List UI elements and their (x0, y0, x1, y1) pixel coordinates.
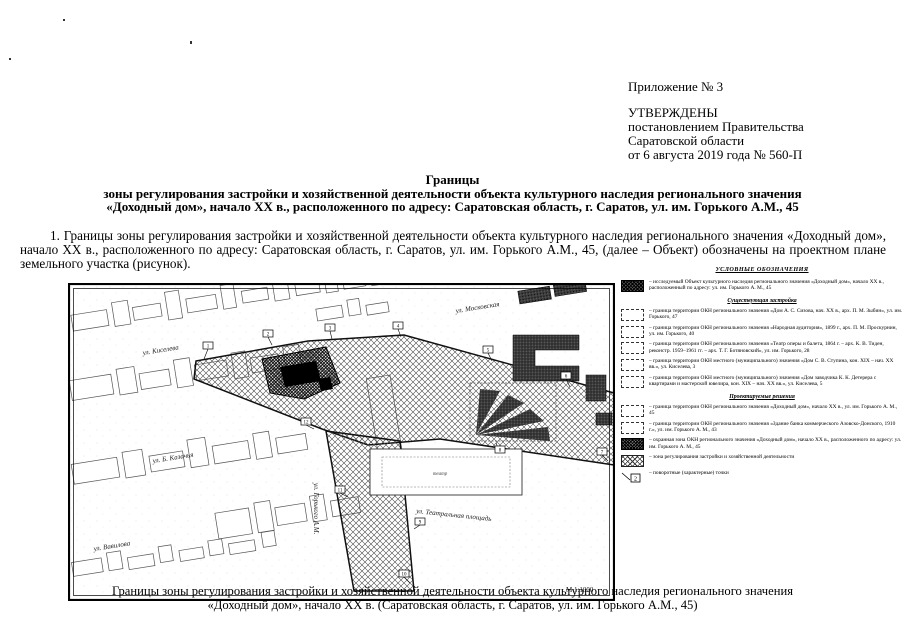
legend-item: – граница территории ОКН регионального з… (621, 341, 903, 354)
territory-boundary-swatch (621, 376, 644, 388)
territory-boundary-swatch (621, 405, 644, 417)
legend-item-text: – исследуемый Объект культурного наследи… (649, 279, 903, 292)
svg-text:12: 12 (304, 421, 310, 426)
legend-item-text: – граница территории ОКН регионального з… (649, 308, 903, 321)
page-title: Границы зоны регулирования застройки и х… (0, 173, 905, 214)
legend-item: – охранная зона ОКН регионального значен… (621, 437, 903, 450)
protection-zone-swatch (621, 438, 644, 450)
legend-item-text: – зона регулирования застройки и хозяйст… (649, 454, 903, 461)
svg-text:2: 2 (634, 477, 637, 483)
figure-caption: Границы зоны регулирования застройки и х… (0, 584, 905, 612)
legend-item-text: – граница территории ОКН местного (муниц… (649, 358, 903, 371)
approval-line: УТВЕРЖДЕНЫ (628, 106, 804, 120)
turning-point-swatch-svg: 2 (621, 471, 644, 483)
legend-item-text: – граница территории ОКН местного (муниц… (649, 375, 903, 388)
theater-building: театр (370, 449, 522, 495)
legend-item-text: – граница территории ОКН регионального з… (649, 404, 903, 417)
site-plan-figure: театр ул. Киселева ул. Московская ул. Б.… (68, 283, 615, 601)
legend-item-text: – поворотные (характерные) точки (649, 470, 903, 477)
legend-item: – граница территории ОКН регионального з… (621, 325, 903, 338)
approval-line: от 6 августа 2019 года № 560-П (628, 148, 804, 162)
appendix-label: Приложение № 3 (628, 80, 804, 94)
legend-title: УСЛОВНЫЕ ОБОЗНАЧЕНИЯ (621, 266, 903, 274)
legend-item: – граница территории ОКН регионального з… (621, 404, 903, 417)
legend-item: – граница территории ОКН регионального з… (621, 421, 903, 434)
body-paragraph: 1. Границы зоны регулирования застройки … (20, 229, 886, 270)
legend-item: – исследуемый Объект культурного наследи… (621, 279, 903, 292)
street-label-gorkogo: ул. Горького А.М. (312, 482, 320, 535)
territory-boundary-swatch (621, 309, 644, 321)
title-line: Границы (0, 173, 905, 187)
svg-text:11: 11 (338, 489, 343, 494)
legend-item: – зона регулирования застройки и хозяйст… (621, 454, 903, 467)
legend-item: – граница территории ОКН местного (муниц… (621, 358, 903, 371)
legend-item-text: – граница территории ОКН регионального з… (649, 421, 903, 434)
territory-boundary-swatch (621, 326, 644, 338)
approval-line: постановлением Правительства (628, 120, 804, 134)
legend-item-text: – граница территории ОКН регионального з… (649, 341, 903, 354)
scan-speck (63, 19, 65, 21)
approval-block: Приложение № 3 УТВЕРЖДЕНЫ постановлением… (628, 80, 804, 162)
scan-speck (190, 41, 192, 44)
caption-line: Границы зоны регулирования застройки и х… (0, 584, 905, 598)
territory-boundary-swatch (621, 422, 644, 434)
turning-point-swatch: 2 (621, 471, 644, 483)
legend-section-heading: Проектируемые решения (621, 394, 903, 401)
title-line: «Доходный дом», начало XX в., расположен… (0, 200, 905, 214)
title-line: зоны регулирования застройки и хозяйстве… (0, 187, 905, 201)
legend-item: – граница территории ОКН местного (муниц… (621, 375, 903, 388)
site-plan-svg: театр ул. Киселева ул. Московская ул. Б.… (68, 283, 615, 601)
legend-section-heading: Существующая застройка (621, 298, 903, 305)
theater-label: театр (433, 472, 448, 477)
legend: УСЛОВНЫЕ ОБОЗНАЧЕНИЯ – исследуемый Объек… (621, 266, 903, 487)
legend-item-text: – охранная зона ОКН регионального значен… (649, 437, 903, 450)
svg-text:10: 10 (402, 573, 408, 578)
object-swatch (621, 280, 644, 292)
caption-line: «Доходный дом», начало XX в. (Саратовска… (0, 598, 905, 612)
legend-item-text: – граница территории ОКН регионального з… (649, 325, 903, 338)
legend-item: 2 – поворотные (характерные) точки (621, 470, 903, 483)
legend-item: – граница территории ОКН регионального з… (621, 308, 903, 321)
territory-boundary-swatch (621, 342, 644, 354)
regulation-zone-swatch (621, 455, 644, 467)
approval-line: Саратовской области (628, 134, 804, 148)
scan-speck (9, 58, 11, 60)
territory-boundary-swatch (621, 359, 644, 371)
